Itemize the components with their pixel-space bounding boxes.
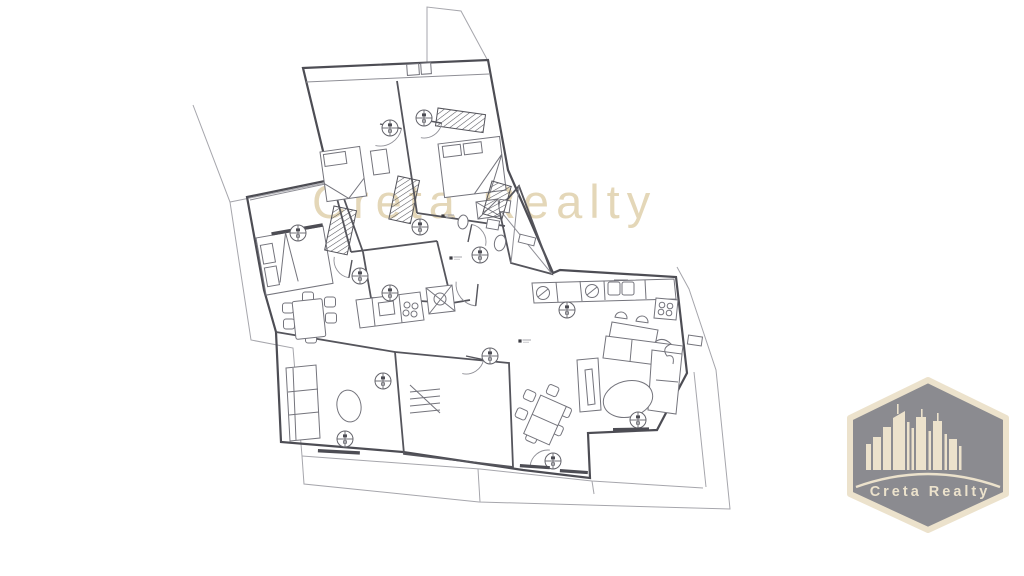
ac-unit bbox=[407, 64, 420, 76]
oval-rug bbox=[599, 375, 656, 422]
stove bbox=[654, 298, 678, 320]
kitchen-counter-left bbox=[356, 285, 455, 328]
wall-sofa bbox=[286, 365, 320, 441]
door-thresholds bbox=[318, 427, 649, 474]
tv-bench bbox=[577, 358, 601, 412]
logo-label: Creta Realty bbox=[870, 484, 991, 500]
storage-room-walls bbox=[395, 352, 513, 467]
single-bed bbox=[320, 146, 367, 201]
staircase bbox=[410, 385, 440, 413]
brand-logo: Creta Realty bbox=[850, 380, 1006, 530]
kitchen-counter-right bbox=[532, 279, 678, 320]
ac-unit bbox=[687, 335, 702, 346]
washing-machine bbox=[426, 285, 455, 314]
wardrobe bbox=[435, 108, 485, 133]
screenshot-canvas: Creta Realty bbox=[0, 0, 1024, 576]
ac-unit bbox=[421, 63, 432, 75]
sink bbox=[378, 301, 394, 316]
nightstand bbox=[370, 149, 389, 175]
dining-table-center bbox=[507, 376, 577, 452]
level-markers bbox=[441, 214, 531, 342]
floor-plan-image: Creta Realty bbox=[0, 0, 1024, 576]
oval-rug bbox=[334, 388, 363, 424]
wash-basin bbox=[486, 219, 499, 230]
